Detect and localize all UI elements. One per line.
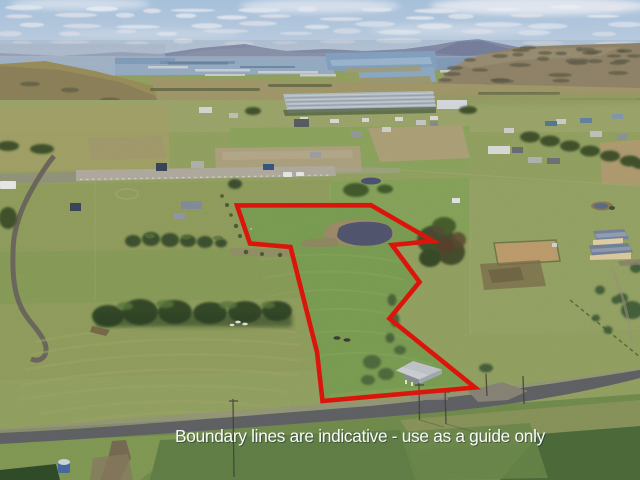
- svg-text:Boundary lines are indicative: Boundary lines are indicative - use as a…: [175, 426, 546, 446]
